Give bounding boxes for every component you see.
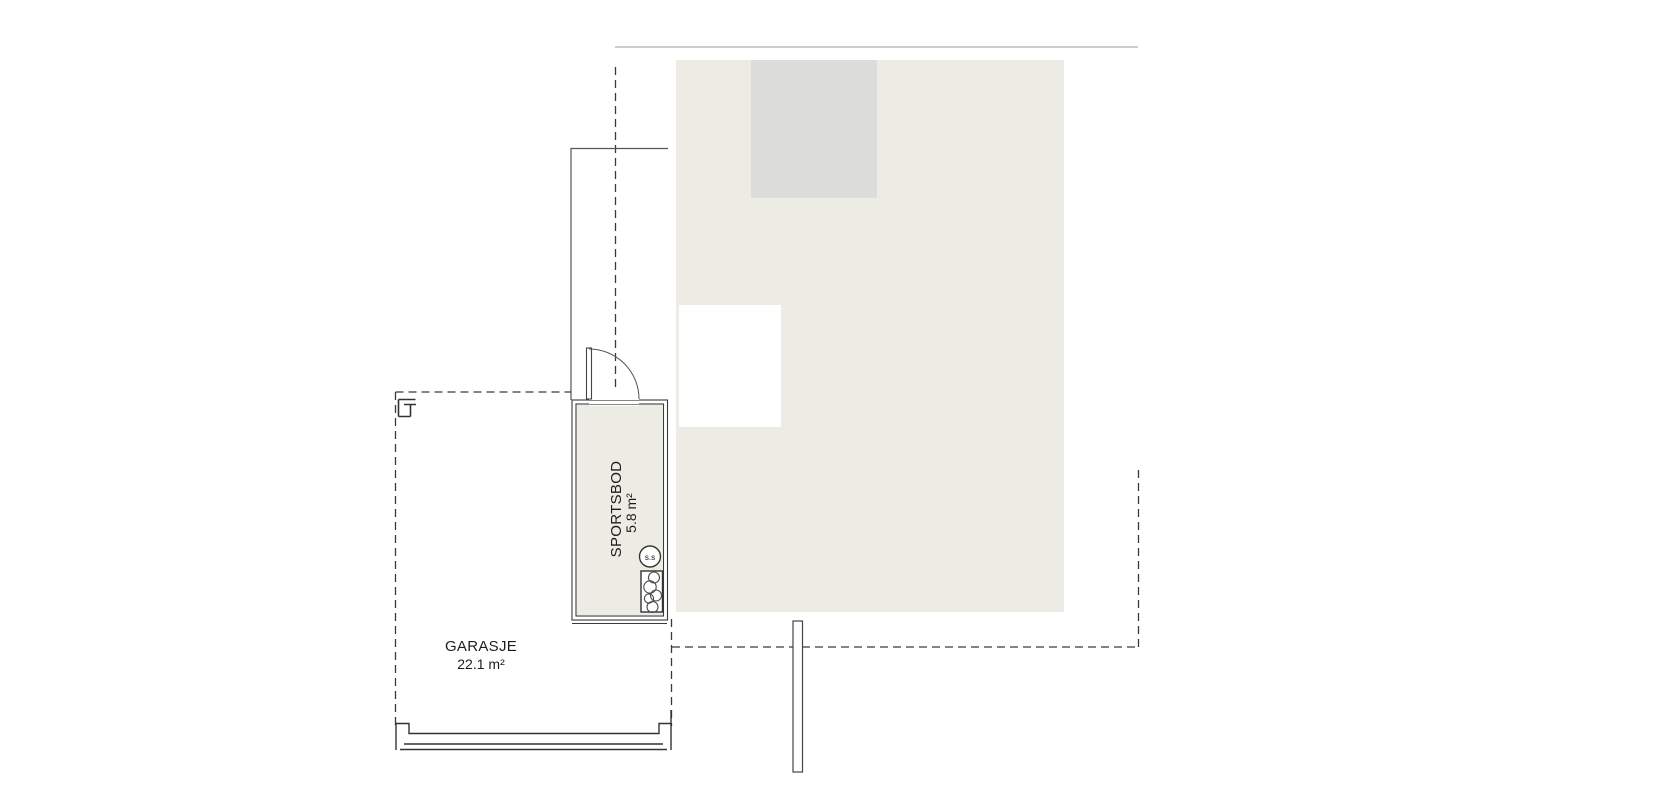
svg-text:22.1 m²: 22.1 m² — [457, 656, 505, 672]
svg-text:5.8 m²: 5.8 m² — [623, 493, 639, 533]
svg-text:GARASJE: GARASJE — [445, 638, 517, 655]
svg-text:s.s: s.s — [645, 553, 655, 562]
